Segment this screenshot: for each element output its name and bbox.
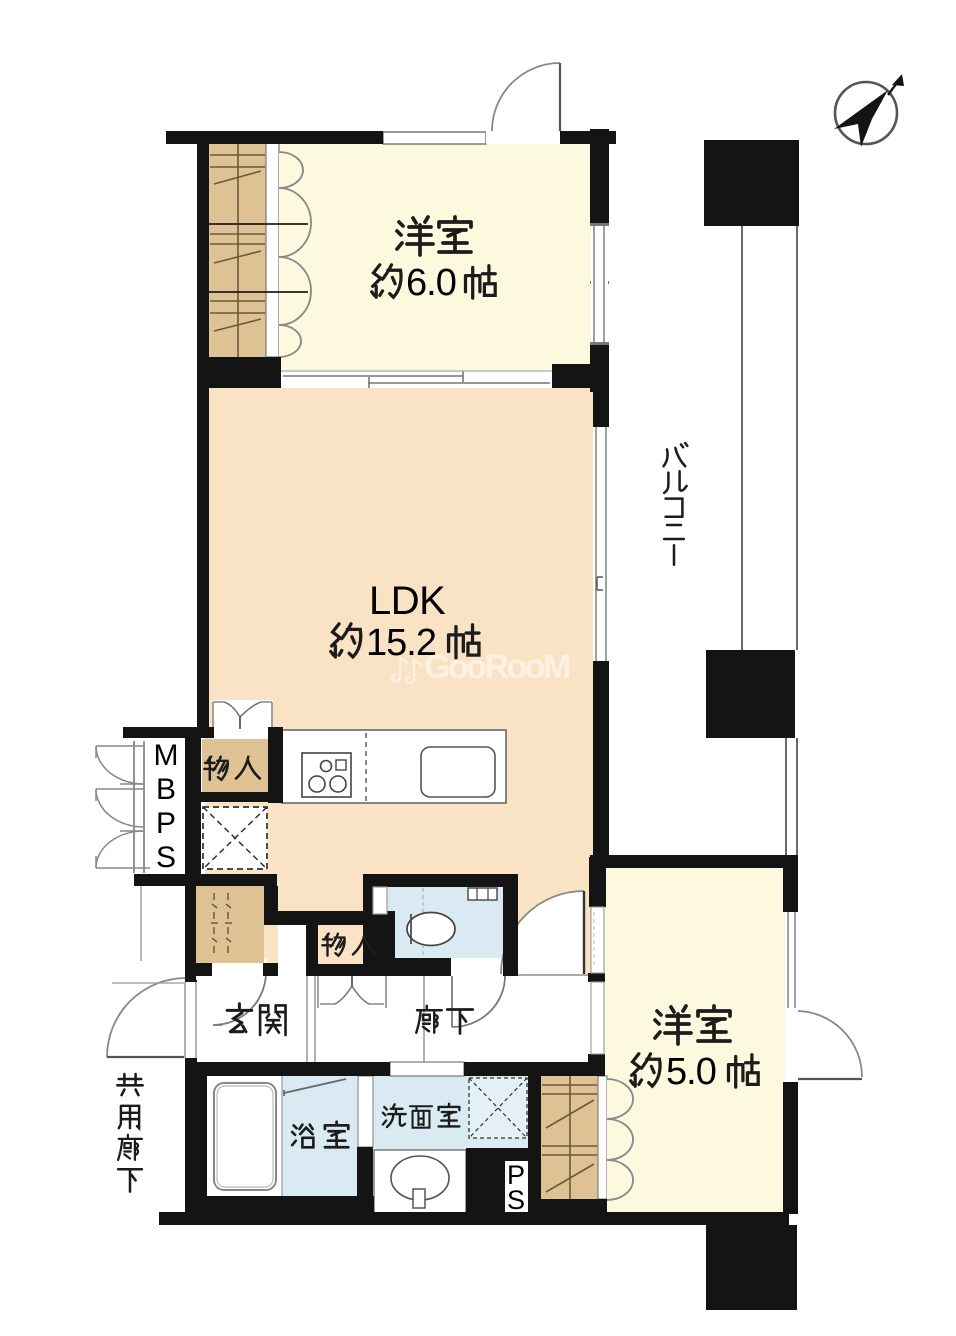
svg-text:GooRooM: GooRooM (424, 648, 570, 686)
svg-text:P: P (156, 807, 176, 840)
svg-text:S: S (507, 1185, 525, 1215)
svg-text:5.0: 5.0 (666, 1051, 716, 1093)
svg-text:M: M (154, 739, 179, 772)
svg-text:B: B (156, 773, 176, 806)
svg-text:S: S (156, 841, 176, 874)
svg-text:LDK: LDK (369, 579, 446, 623)
svg-text:6.0: 6.0 (406, 262, 456, 304)
